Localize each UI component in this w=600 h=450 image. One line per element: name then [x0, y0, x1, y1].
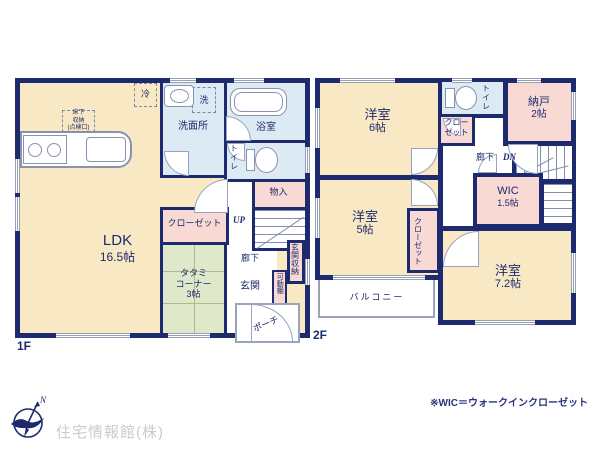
hall-label-2f: 廊下	[468, 152, 502, 163]
window	[305, 147, 310, 173]
window	[517, 78, 541, 83]
room5-label: 洋室 5帖	[320, 209, 410, 237]
window	[333, 275, 425, 280]
closet-2f-top-label: クローゼット	[441, 118, 472, 139]
bath-label: 浴室	[246, 122, 286, 134]
toilet-tank-2f	[445, 88, 455, 108]
stove-icon	[23, 135, 67, 164]
floor1-label: 1F	[17, 339, 31, 353]
toilet-bowl-2f	[455, 86, 477, 110]
closet-label-1f: クローゼット	[161, 218, 228, 229]
room6-label: 洋室 6帖	[330, 107, 425, 135]
monoire-label: 物入	[256, 187, 301, 198]
window	[305, 259, 310, 285]
tatami-label: タタミ コーナー 3帖	[162, 268, 225, 300]
window	[571, 253, 576, 293]
toilet-label-1f: トイレ	[229, 144, 238, 171]
sink-bowl	[170, 89, 189, 103]
bathtub-inner	[234, 92, 283, 112]
tatami-line	[163, 303, 224, 304]
window	[452, 78, 472, 83]
entrance-storage-label: 玄関収納	[290, 243, 299, 275]
window	[340, 78, 395, 83]
window	[234, 78, 264, 83]
room72-label: 洋室 7.2帖	[463, 263, 553, 291]
toilet-label-2f: トイレ	[481, 84, 490, 111]
window	[15, 197, 20, 231]
window	[56, 333, 130, 338]
window	[168, 333, 210, 338]
window	[475, 320, 535, 325]
fridge-label: 冷	[134, 89, 157, 100]
room-closet-2f-bottom	[407, 208, 440, 273]
balcony-label: バルコニー	[332, 292, 422, 303]
hall-label-1f: 廊下	[234, 253, 266, 264]
entrance-label: 玄関	[233, 281, 267, 293]
floor-plan-1f: LDK 16.5帖 床下 収納 (点検口) 冷 洗 洗面所 浴室 トイレ 物入 …	[15, 78, 310, 338]
dn-label: DN	[503, 152, 516, 163]
kitchen-sink-icon	[86, 137, 126, 162]
toilet-bowl-1f	[255, 147, 278, 173]
movable-shelf-label: 可動棚	[275, 273, 283, 294]
window	[15, 159, 20, 193]
door-arc-ldk	[194, 179, 228, 213]
washroom-sink-icon	[164, 85, 194, 107]
toilet-tank-1f	[246, 149, 255, 171]
company-name: 住宅情報館(株)	[56, 421, 164, 442]
window	[170, 78, 196, 83]
up-label: UP	[233, 215, 245, 226]
washer-label: 洗	[192, 95, 216, 106]
closet-2f-bottom-label: クローゼット	[413, 216, 422, 266]
wic-note: ※WIC＝ウォークインクローゼット	[430, 394, 588, 409]
wic-label: WIC 1.5帖	[475, 185, 541, 209]
ldk-label: LDK 16.5帖	[70, 232, 165, 264]
floor-plan-2f: 洋室 6帖 トイレ クローゼット 納戸 2帖 廊下 DN WIC 1.5帖 洋室…	[315, 78, 576, 330]
nando-label: 納戸 2帖	[503, 96, 575, 121]
ldk-area: 16.5帖	[70, 250, 165, 264]
window	[315, 108, 320, 148]
burner-icon	[47, 143, 61, 157]
ldk-name: LDK	[70, 232, 165, 250]
washroom-label: 洗面所	[163, 121, 223, 133]
compass-icon: N	[6, 393, 52, 445]
floor-plan-page: LDK 16.5帖 床下 収納 (点検口) 冷 洗 洗面所 浴室 トイレ 物入 …	[0, 0, 600, 450]
underfloor-label: 床下 収納 (点検口)	[62, 110, 95, 133]
floor2-label: 2F	[313, 328, 327, 342]
stairs-2f-lower	[540, 180, 576, 227]
burner-icon	[28, 143, 42, 157]
bathtub-icon	[230, 88, 287, 116]
compass-n-label: N	[39, 395, 47, 405]
